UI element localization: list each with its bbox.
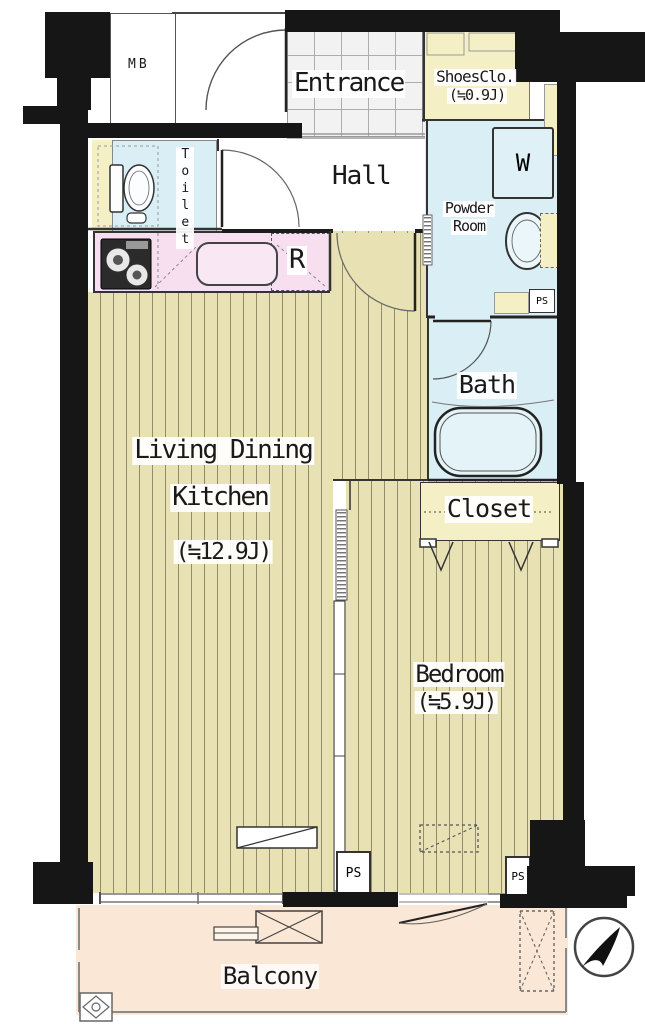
bedroom-label: Bedroom [413,662,504,687]
bedroom-size-label: (≒5.9J) [415,691,498,714]
balcony-label: Balcony [221,964,319,989]
ps-label: PS [511,870,524,883]
bath-floor-curve [432,400,554,407]
hall-label: Hall [330,163,393,191]
ldk-door-swing [337,233,415,311]
washing-machine-space: W [492,127,554,199]
toilet-label: Toilet [176,147,194,249]
wall-top-right-pillar [515,10,560,82]
counter-diagonal-left [155,246,197,287]
entrance-door-swing [206,30,286,110]
closet-folding-door-right [509,542,533,570]
mb-label: MB [126,58,152,72]
sliding-door [334,601,345,891]
ps-label: PS [536,296,548,307]
bathtub-icon [435,408,541,476]
shoes-closet-label: ShoesClo. [434,69,516,86]
wall-right-upper [557,82,576,484]
floor-plan: W PS PS PS [0,0,645,1024]
wall-right-lower [563,482,584,868]
wall-left-main [60,110,88,895]
kitchen-sink [197,243,277,285]
wall-bottom-right-step3 [500,894,627,908]
shoes-shelf-2 [469,33,517,51]
refrigerator-label: R [287,246,307,275]
wall-bottom-right-step2 [527,866,635,896]
powder-room-label-line1: Powder [443,201,495,217]
partition-hatch [336,510,347,600]
toilet-base [127,213,146,223]
bath-label: Bath [457,372,517,399]
ldk-label-line2: Kitchen [170,484,270,512]
wall-top-bar [285,10,515,32]
ldk-size-label: (≒12.9J) [174,540,273,564]
closet-label: Closet [445,496,533,523]
closet-stub-left [420,539,436,547]
washer-label: W [516,149,530,177]
counter-chip [494,292,529,314]
shoes-shelf-1 [427,33,464,55]
wall-bottom-left-block [33,862,93,904]
stove-grill [126,241,148,249]
ldk-label-line1: Living Dining [132,437,314,465]
stove-burner-2-center [133,271,142,280]
wall-top-left-pillar [45,12,110,78]
wall-bottom-mid [283,892,398,907]
toilet-door-swing [222,150,299,227]
toilet-bowl [124,165,154,211]
pipe-space-ldk: PS [336,851,371,896]
wall-left-stub [23,106,63,124]
pipe-space-powder: PS [529,289,555,313]
wall-right-stub [560,32,645,82]
powder-room-label-line2: Room [451,219,487,235]
wall-toilet-top [60,123,302,138]
closet-stub-right [542,539,558,547]
stove-burner-1-center [113,255,123,265]
toilet-tank [110,165,123,212]
wall-bottom-right-step1 [530,820,585,868]
bedroom-ac-diagonal [420,825,478,852]
shoes-closet-size-label: (≒0.9J) [447,88,507,104]
ps-label: PS [346,866,362,881]
entrance-label: Entrance [292,70,405,98]
